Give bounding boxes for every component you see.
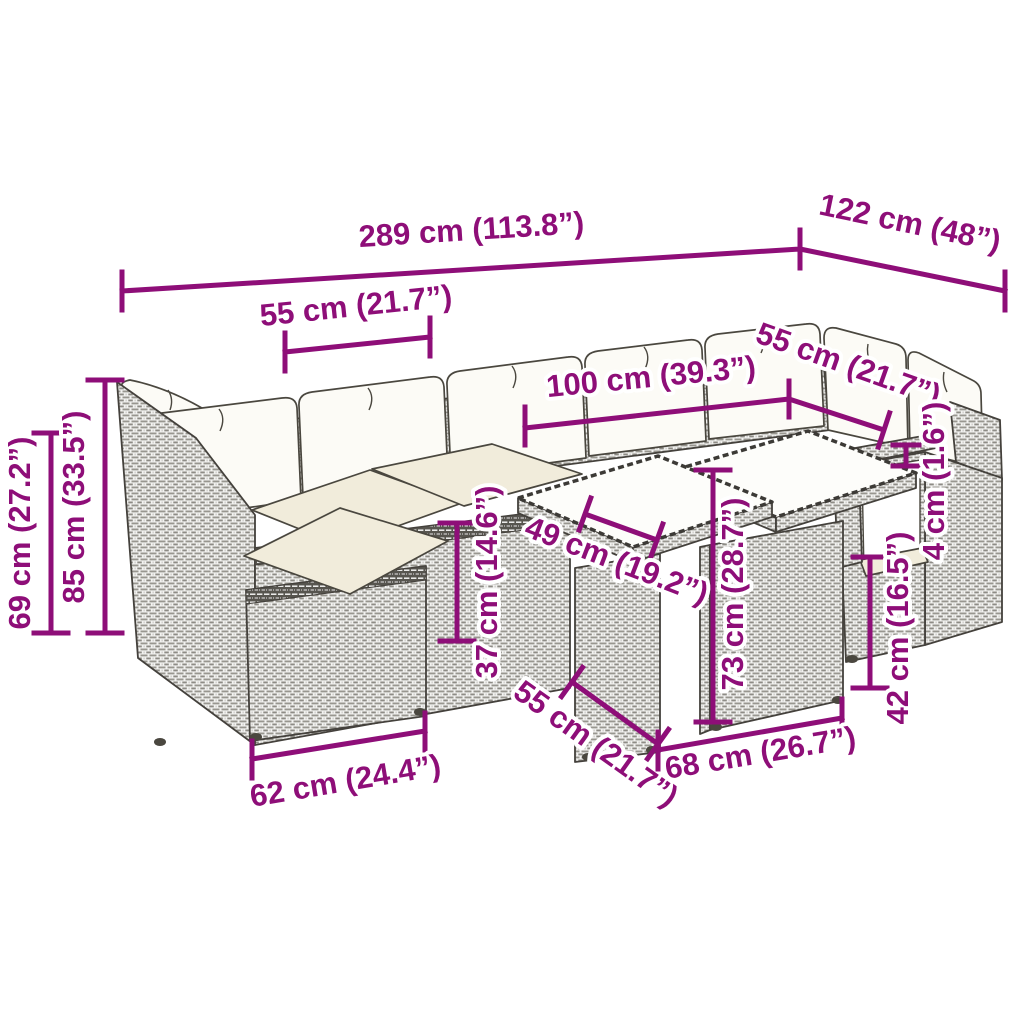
dim-85cm: 85 cm (33.5”): [56, 380, 122, 633]
dim-label: 37 cm (14.6”): [469, 486, 504, 679]
dim-289cm: 289 cm (113.8”): [122, 205, 800, 310]
dim-label: 73 cm (28.7”): [715, 498, 750, 691]
dim-label: 69 cm (27.2”): [2, 437, 37, 630]
ottoman: [244, 508, 448, 741]
product-dimension-diagram: 289 cm (113.8”) 122 cm (48”) 55 cm (21.7…: [0, 0, 1024, 1024]
dim-label: 42 cm (16.5”): [880, 532, 915, 725]
dim-label: 122 cm (48”): [816, 187, 1004, 259]
dim-label: 4 cm (1.6”): [916, 402, 951, 561]
dim-label: 85 cm (33.5”): [56, 411, 91, 604]
dim-label: 68 cm (26.7”): [662, 719, 858, 785]
dim-122cm: 122 cm (48”): [800, 187, 1005, 310]
dim-55cm-top: 55 cm (21.7”): [258, 278, 454, 371]
dim-label: 55 cm (21.7”): [258, 278, 454, 333]
dim-label: 289 cm (113.8”): [358, 205, 586, 254]
